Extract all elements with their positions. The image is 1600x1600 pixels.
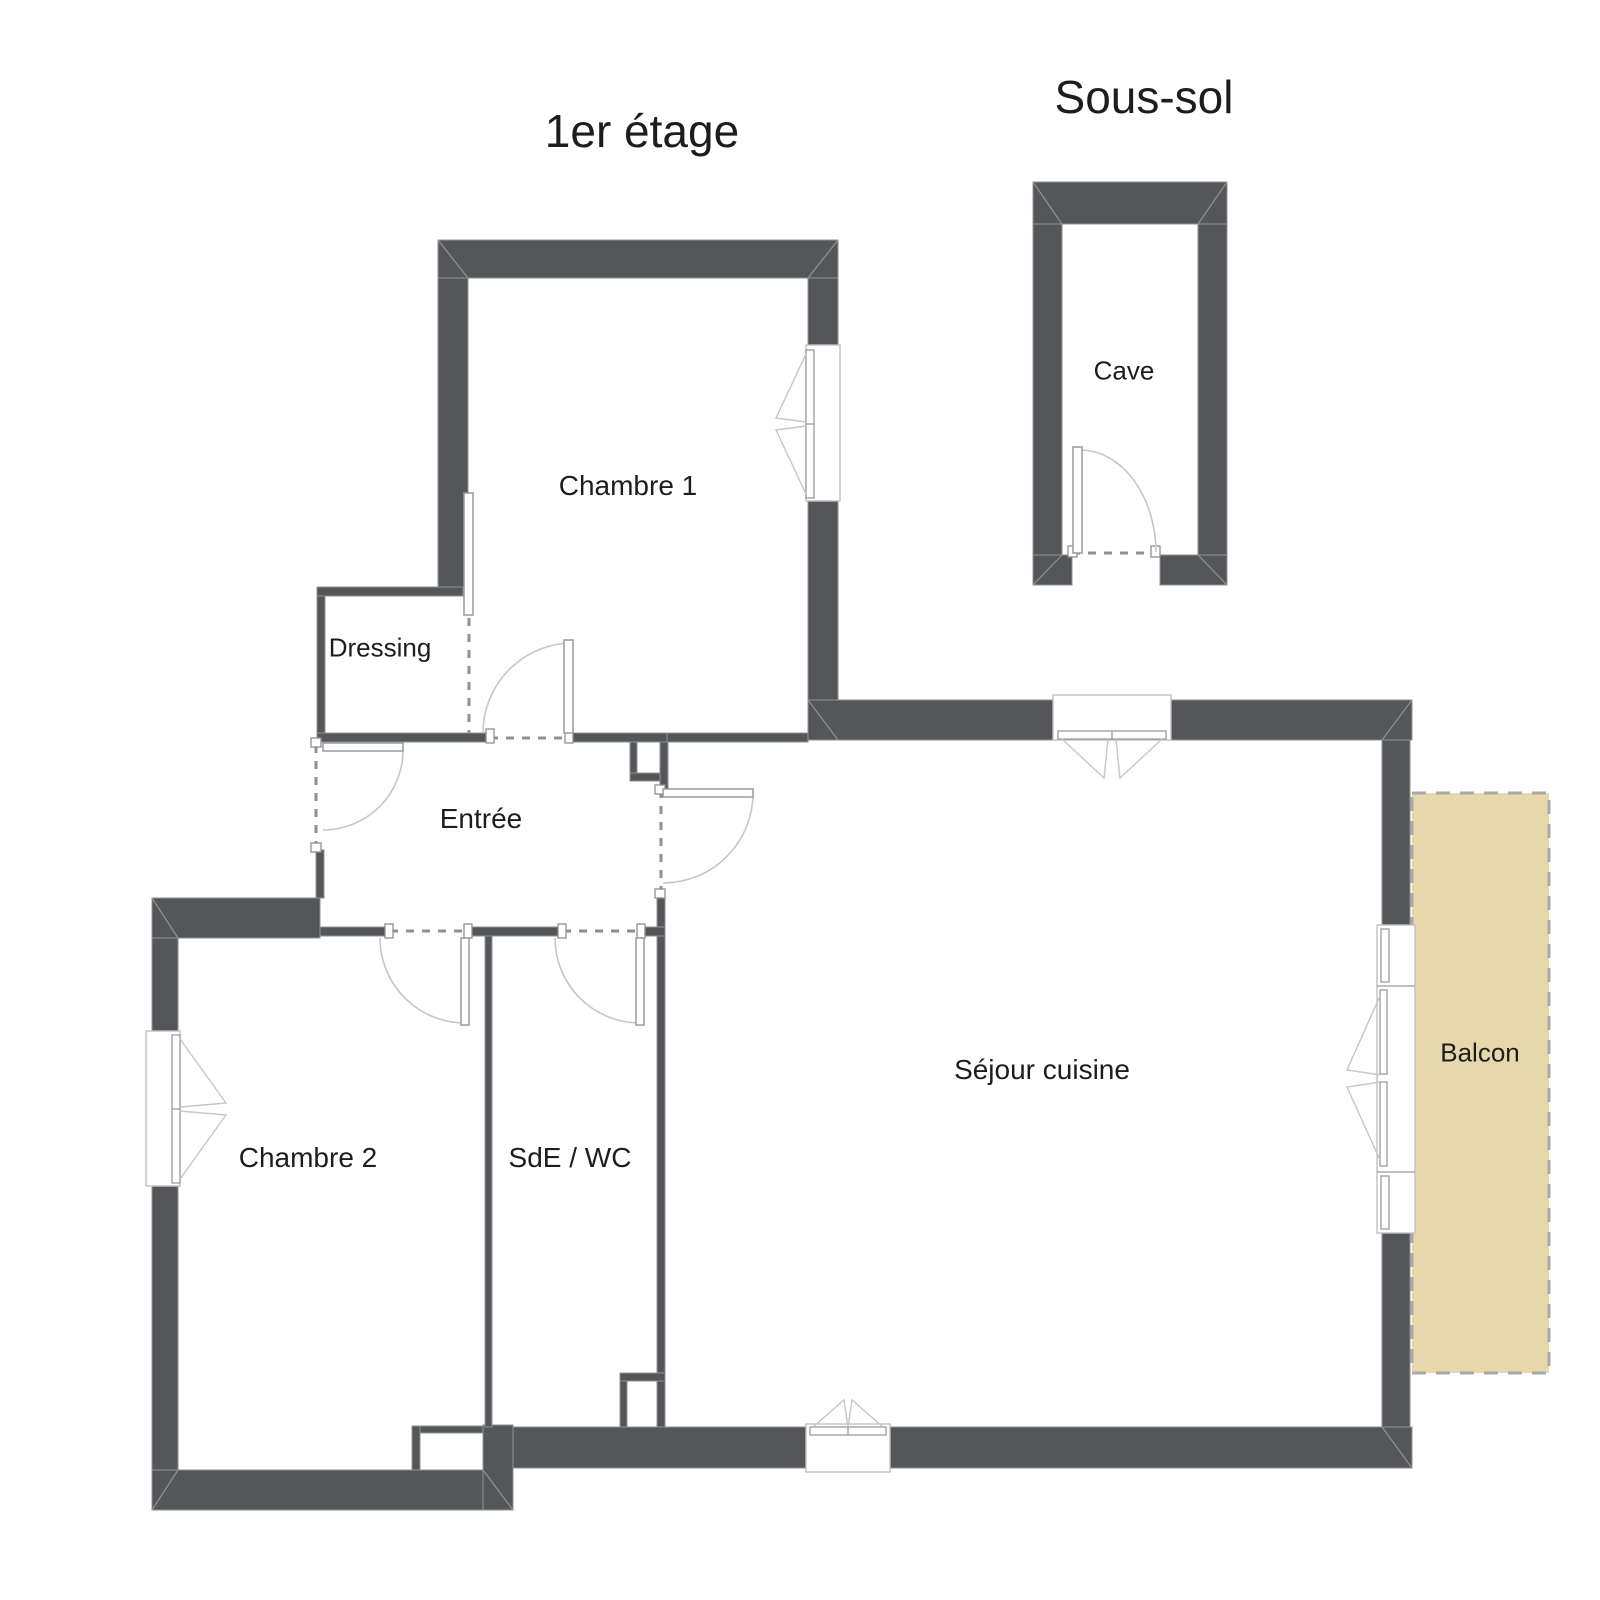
casement-triangle	[813, 1400, 848, 1427]
casement-triangle	[1116, 739, 1162, 778]
wall	[320, 927, 390, 936]
window-sidelight	[1381, 1176, 1389, 1229]
door-jamb	[655, 889, 665, 898]
wall	[808, 700, 1053, 740]
door-swing-arc	[555, 938, 640, 1023]
door-sejour	[655, 785, 753, 898]
window-sejour-top	[1053, 695, 1171, 778]
door-cave	[1068, 447, 1160, 557]
casement-triangle	[1062, 739, 1108, 778]
balcony-area	[1412, 793, 1549, 1373]
casement-triangle	[776, 426, 806, 494]
door-jamb	[486, 729, 494, 743]
wall	[1033, 224, 1062, 555]
room-label-balcon: Balcon	[1440, 1038, 1520, 1069]
casement-triangle	[1347, 996, 1380, 1075]
wall	[513, 1427, 808, 1468]
room-label-entree: Entrée	[440, 803, 523, 835]
door-jamb	[385, 924, 393, 938]
duct-niche-wall	[412, 1426, 420, 1470]
wall	[438, 240, 838, 278]
wall	[1198, 224, 1227, 555]
wall	[1382, 1233, 1410, 1427]
wall	[660, 742, 668, 790]
door-sde	[555, 924, 645, 1025]
wall	[152, 898, 320, 938]
door-leaf	[636, 938, 644, 1025]
wall	[1382, 740, 1410, 925]
duct-niche-wall	[620, 1381, 627, 1427]
door-dressing-leaf	[464, 493, 473, 615]
door-leaf	[1073, 447, 1082, 553]
wall	[152, 938, 178, 1510]
door-jamb	[637, 924, 645, 938]
wall	[152, 1470, 513, 1510]
door-swing-arc	[380, 938, 465, 1023]
room-label-sde-wc: SdE / WC	[509, 1142, 632, 1174]
window-sidelight	[1381, 929, 1389, 982]
door-swing-arc	[1082, 450, 1156, 552]
wall	[470, 927, 563, 936]
window-chambre2	[146, 1031, 226, 1186]
window-frame	[1380, 1082, 1387, 1166]
wall	[317, 596, 325, 742]
door-leaf	[464, 493, 473, 615]
wall	[316, 850, 324, 898]
wall	[317, 587, 463, 596]
wall	[889, 1427, 1412, 1468]
room-label-sejour: Séjour cuisine	[954, 1054, 1130, 1086]
door-leaf	[564, 640, 573, 733]
casement-triangle	[1347, 1082, 1380, 1160]
wall	[1033, 555, 1072, 585]
wall	[317, 733, 490, 742]
door-swing-arc	[323, 750, 403, 830]
room-label-chambre1: Chambre 1	[559, 470, 698, 502]
wall	[667, 733, 808, 742]
casement-triangle	[848, 1400, 883, 1427]
basement-title: Sous-sol	[994, 70, 1294, 124]
door-leaf	[461, 938, 469, 1025]
window-sejour-balcony	[1347, 925, 1415, 1233]
wall	[485, 936, 492, 1427]
door-chambre2	[380, 924, 472, 1025]
wall	[483, 1425, 513, 1510]
floor-plan-drawing	[0, 0, 1600, 1600]
wall	[1160, 555, 1227, 585]
door-jamb	[464, 924, 472, 938]
casement-triangle	[180, 1111, 226, 1179]
duct-niche-wall	[620, 1373, 665, 1381]
wall	[657, 936, 665, 1427]
wall	[643, 927, 665, 936]
door-swing-arc	[483, 643, 573, 733]
door-jamb	[311, 738, 321, 747]
wall	[1171, 700, 1412, 740]
casement-triangle	[180, 1039, 226, 1107]
door-jamb	[558, 924, 566, 938]
door-chambre1	[483, 640, 573, 743]
door-entry	[311, 738, 403, 852]
door-jamb	[311, 843, 321, 852]
window-chambre1	[776, 345, 840, 501]
window-sejour-bottom	[806, 1400, 890, 1472]
door-swing-arc	[663, 793, 753, 883]
chambre2-walls	[152, 898, 513, 1510]
casement-triangle	[776, 354, 806, 422]
room-label-cave: Cave	[1094, 356, 1155, 387]
window-frame	[1380, 990, 1387, 1074]
room-label-chambre2: Chambre 2	[239, 1142, 378, 1174]
floor-title: 1er étage	[492, 104, 792, 158]
duct-niche-wall	[412, 1426, 483, 1433]
wall	[1033, 182, 1227, 224]
entree-walls	[316, 733, 808, 936]
floor-plan-page: 1er étage Sous-sol Chambre 1 Dressing En…	[0, 0, 1600, 1600]
door-leaf	[323, 743, 403, 751]
door-leaf	[663, 789, 753, 797]
wall	[570, 733, 667, 742]
room-label-dressing: Dressing	[329, 633, 432, 664]
